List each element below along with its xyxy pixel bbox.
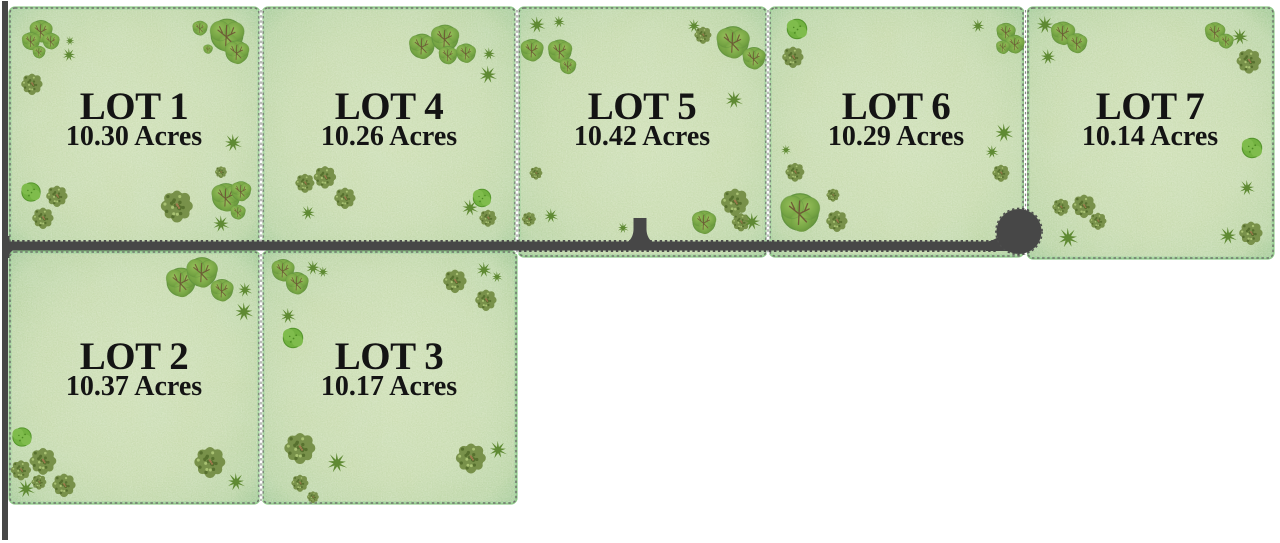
svg-text:10.30 Acres: 10.30 Acres [66,121,202,152]
svg-text:10.14 Acres: 10.14 Acres [1082,121,1218,152]
svg-text:10.26 Acres: 10.26 Acres [321,121,457,152]
svg-text:10.37 Acres: 10.37 Acres [66,371,202,402]
svg-text:10.42 Acres: 10.42 Acres [574,121,710,152]
svg-text:10.29 Acres: 10.29 Acres [828,121,964,152]
svg-text:10.17 Acres: 10.17 Acres [321,371,457,402]
